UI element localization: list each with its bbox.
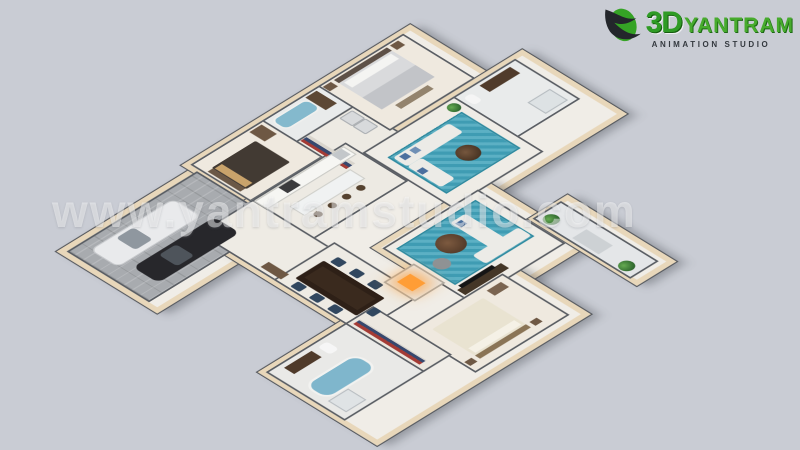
watermark-text: www.yantramstudio.com [52, 184, 637, 238]
logo-text-block: 3D YANTRAM ANIMATION STUDIO [646, 8, 794, 49]
render-canvas: www.yantramstudio.com 3D YANTRAM ANIMATI… [0, 0, 800, 450]
logo-brand-name: YANTRAM [684, 15, 794, 36]
logo-tagline: ANIMATION STUDIO [652, 41, 771, 49]
logo-3d-label: 3D [646, 8, 682, 38]
studio-logo: 3D YANTRAM ANIMATION STUDIO [600, 4, 794, 53]
bird-logo-icon [600, 4, 644, 53]
